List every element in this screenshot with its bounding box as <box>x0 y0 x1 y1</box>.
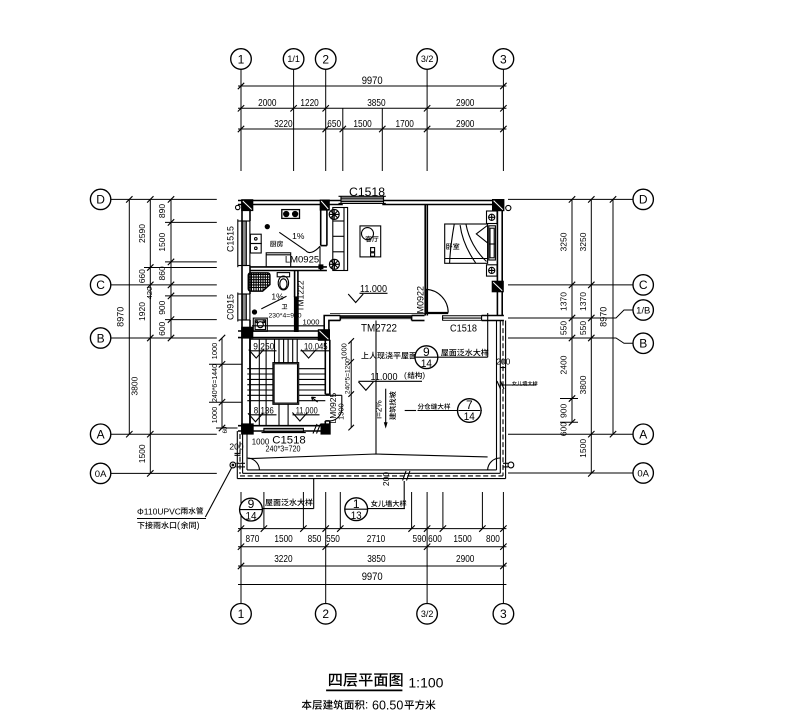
svg-text:2590: 2590 <box>137 224 147 243</box>
svg-text:200: 200 <box>496 357 510 367</box>
svg-text:TM1222: TM1222 <box>296 280 306 311</box>
svg-text:1370: 1370 <box>559 292 569 311</box>
svg-text:650: 650 <box>327 119 341 130</box>
svg-text:TM2722: TM2722 <box>361 323 397 335</box>
svg-text::: : <box>365 699 368 712</box>
svg-text:3: 3 <box>500 52 507 66</box>
svg-text:3250: 3250 <box>559 232 569 251</box>
svg-text:1%: 1% <box>292 231 305 241</box>
svg-text:1: 1 <box>353 497 360 511</box>
svg-text:7: 7 <box>466 398 473 412</box>
svg-text:C: C <box>639 278 648 292</box>
svg-text:1/B: 1/B <box>636 305 650 316</box>
svg-text:9970: 9970 <box>362 75 383 87</box>
svg-text:3/2: 3/2 <box>421 54 434 64</box>
svg-text:890: 890 <box>157 204 167 218</box>
svg-text:14: 14 <box>464 411 475 423</box>
svg-text:1300: 1300 <box>337 403 346 420</box>
svg-text:600: 600 <box>157 321 167 335</box>
svg-text:2900: 2900 <box>456 119 475 130</box>
svg-text:(: ( <box>404 371 407 380</box>
svg-text:1:100: 1:100 <box>408 675 443 691</box>
svg-text:2: 2 <box>322 52 329 66</box>
svg-text:): ) <box>197 520 200 530</box>
svg-text:1500: 1500 <box>137 444 147 463</box>
svg-text:3850: 3850 <box>367 554 386 565</box>
svg-text:3800: 3800 <box>130 376 140 395</box>
svg-text:3250: 3250 <box>578 232 588 251</box>
svg-text:13: 13 <box>351 510 362 522</box>
svg-text:2900: 2900 <box>456 98 475 109</box>
svg-text:A: A <box>639 428 647 442</box>
svg-text:3: 3 <box>500 607 507 621</box>
svg-text:240*6=1440: 240*6=1440 <box>212 364 219 402</box>
svg-text:D: D <box>96 193 105 207</box>
svg-text:860: 860 <box>157 266 167 280</box>
svg-text:550: 550 <box>578 321 588 335</box>
svg-text:B: B <box>97 331 105 345</box>
svg-text:1220: 1220 <box>300 98 319 109</box>
svg-text:200: 200 <box>381 472 391 486</box>
svg-text:60.50: 60.50 <box>372 699 403 713</box>
svg-text:1500: 1500 <box>578 439 588 458</box>
svg-text:1700: 1700 <box>396 119 415 130</box>
svg-text:2: 2 <box>322 607 329 621</box>
svg-text:2400: 2400 <box>559 355 569 374</box>
svg-text:M0922: M0922 <box>415 286 425 314</box>
svg-text:i=2%: i=2% <box>375 400 384 418</box>
svg-text:D: D <box>639 193 648 207</box>
svg-text:3/2: 3/2 <box>421 609 434 619</box>
svg-text:420: 420 <box>145 287 154 300</box>
svg-text:550: 550 <box>559 321 569 335</box>
svg-text:600: 600 <box>428 534 442 545</box>
svg-text:1000: 1000 <box>210 343 219 360</box>
svg-text:C0915: C0915 <box>225 294 235 320</box>
svg-text:): ) <box>422 371 425 380</box>
svg-text:LM0925: LM0925 <box>285 255 319 266</box>
svg-text:1920: 1920 <box>137 302 147 321</box>
svg-text:800: 800 <box>486 534 500 545</box>
svg-text:B: B <box>639 337 647 351</box>
svg-text:240*3=720: 240*3=720 <box>266 445 301 454</box>
svg-text:8970: 8970 <box>599 307 609 327</box>
svg-text:900: 900 <box>559 404 569 418</box>
svg-text:1: 1 <box>238 52 245 66</box>
svg-text:3220: 3220 <box>274 554 293 565</box>
svg-text:590: 590 <box>413 534 427 545</box>
svg-text:1370: 1370 <box>578 292 588 311</box>
svg-text:1000: 1000 <box>340 343 349 360</box>
svg-text:3800: 3800 <box>578 375 588 394</box>
svg-text:14: 14 <box>246 510 257 522</box>
svg-text:14: 14 <box>421 358 432 370</box>
svg-text:200: 200 <box>229 442 243 452</box>
svg-text:660: 660 <box>137 269 147 283</box>
svg-text:870: 870 <box>246 534 260 545</box>
svg-text:8970: 8970 <box>116 307 126 327</box>
svg-text:1500: 1500 <box>353 119 372 130</box>
svg-text:9970: 9970 <box>362 571 383 583</box>
svg-text:9: 9 <box>423 345 430 359</box>
svg-text:1500: 1500 <box>157 232 167 251</box>
svg-text:600: 600 <box>559 422 569 436</box>
svg-text:2000: 2000 <box>258 98 277 109</box>
svg-text:C1518: C1518 <box>349 187 385 199</box>
svg-text:8.136: 8.136 <box>254 406 274 416</box>
svg-text:1500: 1500 <box>274 534 293 545</box>
svg-text:2900: 2900 <box>456 554 475 565</box>
svg-text:A: A <box>97 428 105 442</box>
svg-text:C: C <box>96 278 105 292</box>
svg-text:240*5=1200: 240*5=1200 <box>345 358 352 394</box>
svg-text:(: ( <box>177 520 180 530</box>
svg-text:Φ110UPVC: Φ110UPVC <box>137 507 181 517</box>
svg-text:1500: 1500 <box>453 534 472 545</box>
svg-text:2710: 2710 <box>367 534 386 545</box>
svg-text:3850: 3850 <box>367 98 386 109</box>
svg-text:1000: 1000 <box>210 407 219 424</box>
svg-text:850: 850 <box>308 534 322 545</box>
svg-text:550: 550 <box>326 534 340 545</box>
svg-text:60: 60 <box>223 426 229 433</box>
svg-text:C1515: C1515 <box>225 226 235 252</box>
svg-text:1%: 1% <box>271 292 284 302</box>
svg-text:9: 9 <box>248 497 255 511</box>
svg-text:1000: 1000 <box>303 317 320 326</box>
svg-text:3220: 3220 <box>274 119 293 130</box>
svg-text:0A: 0A <box>637 468 649 479</box>
svg-text:C1518: C1518 <box>450 324 477 335</box>
svg-text:0A: 0A <box>95 469 107 480</box>
svg-text:230*4=920: 230*4=920 <box>268 313 301 320</box>
svg-text:900: 900 <box>157 300 167 314</box>
svg-text:1/1: 1/1 <box>287 54 300 64</box>
svg-text:1: 1 <box>238 607 245 621</box>
